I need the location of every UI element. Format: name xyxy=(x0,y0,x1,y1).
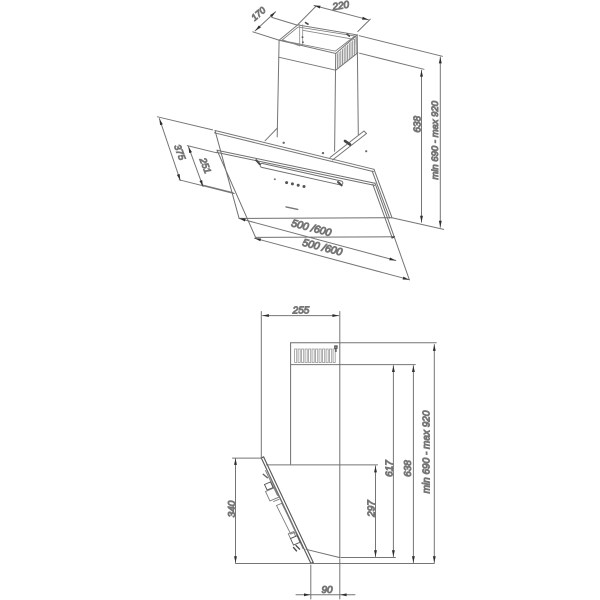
svg-text:638: 638 xyxy=(413,116,424,133)
svg-text:617: 617 xyxy=(384,460,395,477)
svg-text:255: 255 xyxy=(292,306,310,317)
svg-text:340: 340 xyxy=(227,500,238,517)
svg-text:251: 251 xyxy=(196,156,212,176)
svg-text:220: 220 xyxy=(331,0,351,13)
svg-text:638: 638 xyxy=(403,460,414,477)
svg-text:500 /600: 500 /600 xyxy=(290,217,333,239)
svg-text:min 690 - max 920: min 690 - max 920 xyxy=(422,410,433,493)
svg-text:500 /600: 500 /600 xyxy=(301,237,344,259)
svg-text:90: 90 xyxy=(321,585,333,596)
svg-text:170: 170 xyxy=(249,5,268,23)
svg-text:297: 297 xyxy=(366,500,377,518)
svg-text:min 690 - max 920: min 690 - max 920 xyxy=(430,100,441,179)
